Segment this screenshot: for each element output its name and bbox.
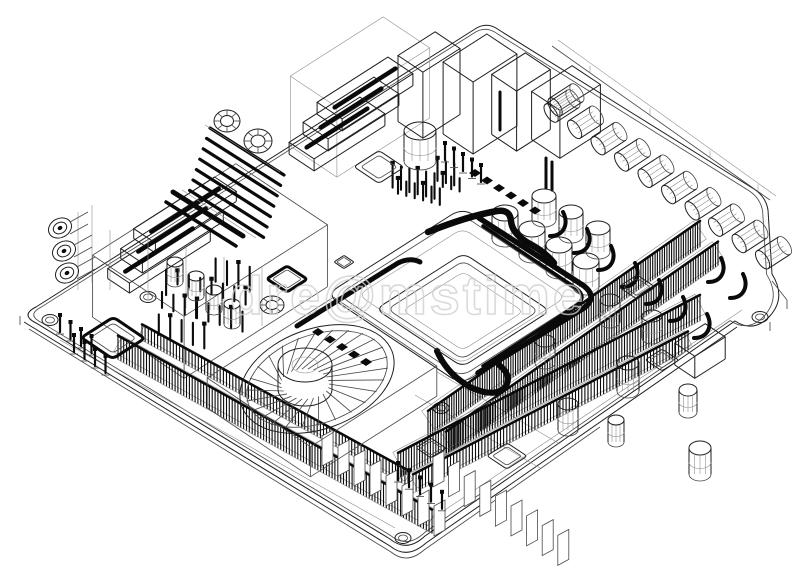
motherboard-wireframe: dre@mstime <box>0 0 800 566</box>
blueprint-canvas: dre@mstime <box>0 0 800 566</box>
watermark: dre@mstime <box>230 266 586 326</box>
audio-jacks <box>45 205 95 290</box>
slot-pillars <box>322 430 569 565</box>
rear-io-wall <box>552 40 776 200</box>
